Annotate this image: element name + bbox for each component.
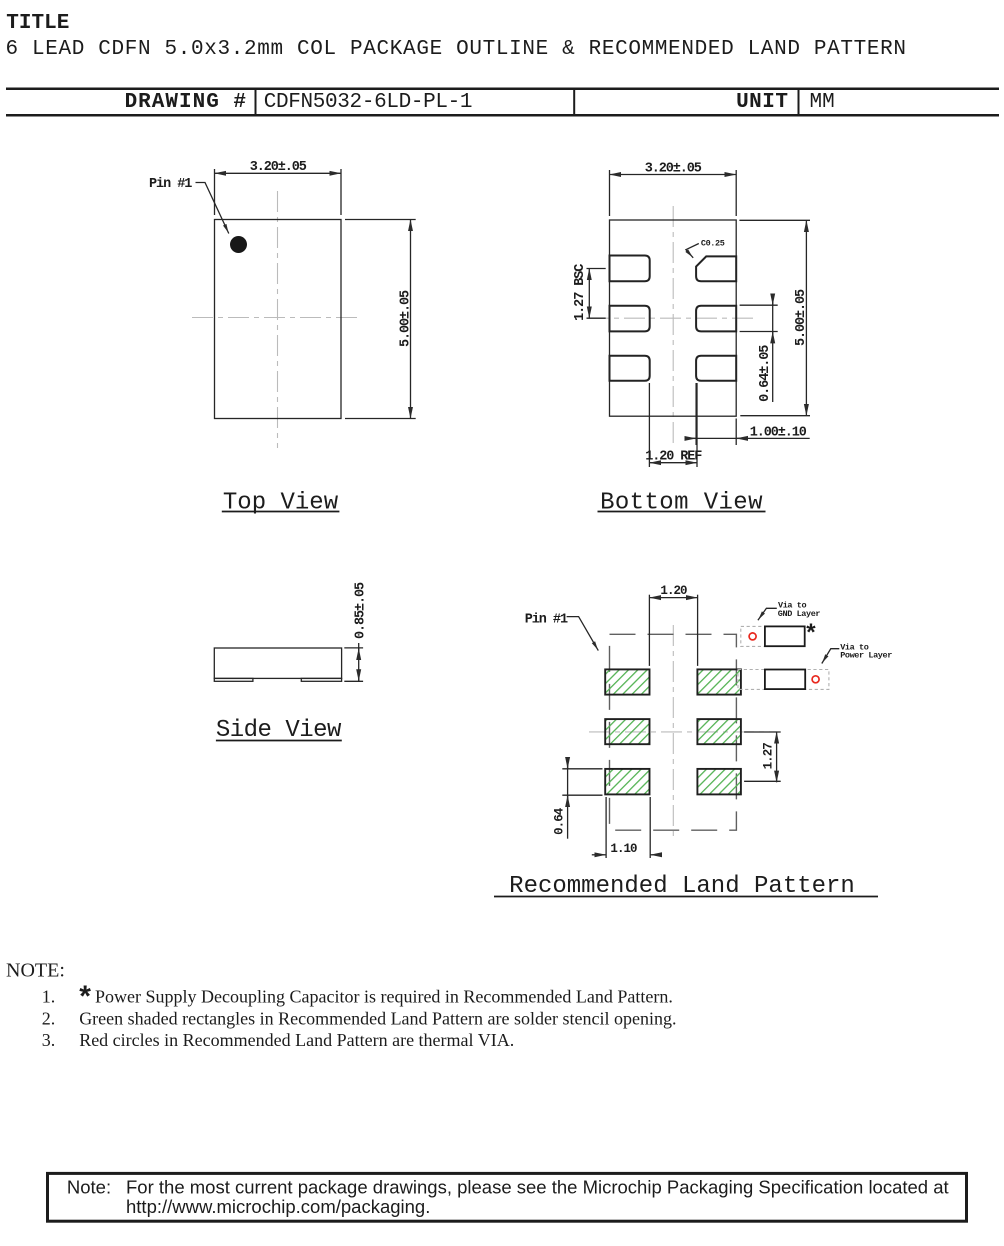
svg-text:Note:: Note: [67,1176,111,1197]
svg-text:5.00±.05: 5.00±.05 [794,289,809,346]
svg-text:MM: MM [810,91,835,114]
svg-text:Power Layer: Power Layer [840,651,892,661]
svg-text:For the most current package d: For the most current package drawings, p… [126,1176,949,1197]
svg-text:Pin #1: Pin #1 [149,177,192,192]
svg-text:0.85±.05: 0.85±.05 [354,582,369,639]
svg-text:3.20±.05: 3.20±.05 [250,160,307,175]
svg-text:UNIT: UNIT [736,91,788,114]
svg-text:TITLE: TITLE [6,12,69,35]
svg-text:5.00±.05: 5.00±.05 [399,290,414,347]
svg-text:*: * [804,622,818,649]
svg-text:6 LEAD CDFN 5.0x3.2mm COL PACK: 6 LEAD CDFN 5.0x3.2mm COL PACKAGE OUTLIN… [6,38,907,61]
svg-text:GND Layer: GND Layer [778,609,821,619]
svg-text:1.: 1. [42,987,56,1007]
svg-text:Bottom View: Bottom View [600,490,763,517]
svg-text:NOTE:: NOTE: [6,959,65,981]
svg-text:1.20 REF: 1.20 REF [645,450,702,465]
svg-text:0.64±.05: 0.64±.05 [758,345,773,402]
svg-text:Red circles in Recommended Lan: Red circles in Recommended Land Pattern … [79,1030,514,1050]
svg-text:C0.25: C0.25 [701,238,725,248]
svg-text:1.00±.10: 1.00±.10 [750,426,807,441]
svg-text:3.: 3. [42,1030,56,1050]
svg-text:1.27 BSC: 1.27 BSC [573,264,588,321]
svg-text:1.10: 1.10 [610,842,637,856]
svg-text:2.: 2. [42,1008,56,1028]
svg-text:http://www.microchip.com/packa: http://www.microchip.com/packaging. [126,1196,430,1217]
svg-text:Top View: Top View [223,490,339,517]
svg-text:Pin #1: Pin #1 [525,612,568,627]
svg-text:CDFN5032-6LD-PL-1: CDFN5032-6LD-PL-1 [264,91,472,114]
svg-text:1.20: 1.20 [660,584,687,598]
svg-text:1.27: 1.27 [762,743,776,770]
svg-text:3.20±.05: 3.20±.05 [645,162,702,177]
svg-text:DRAWING #: DRAWING # [125,91,247,114]
svg-text:Green shaded rectangles in Rec: Green shaded rectangles in Recommended L… [79,1008,676,1028]
svg-text:0.64: 0.64 [553,807,567,835]
